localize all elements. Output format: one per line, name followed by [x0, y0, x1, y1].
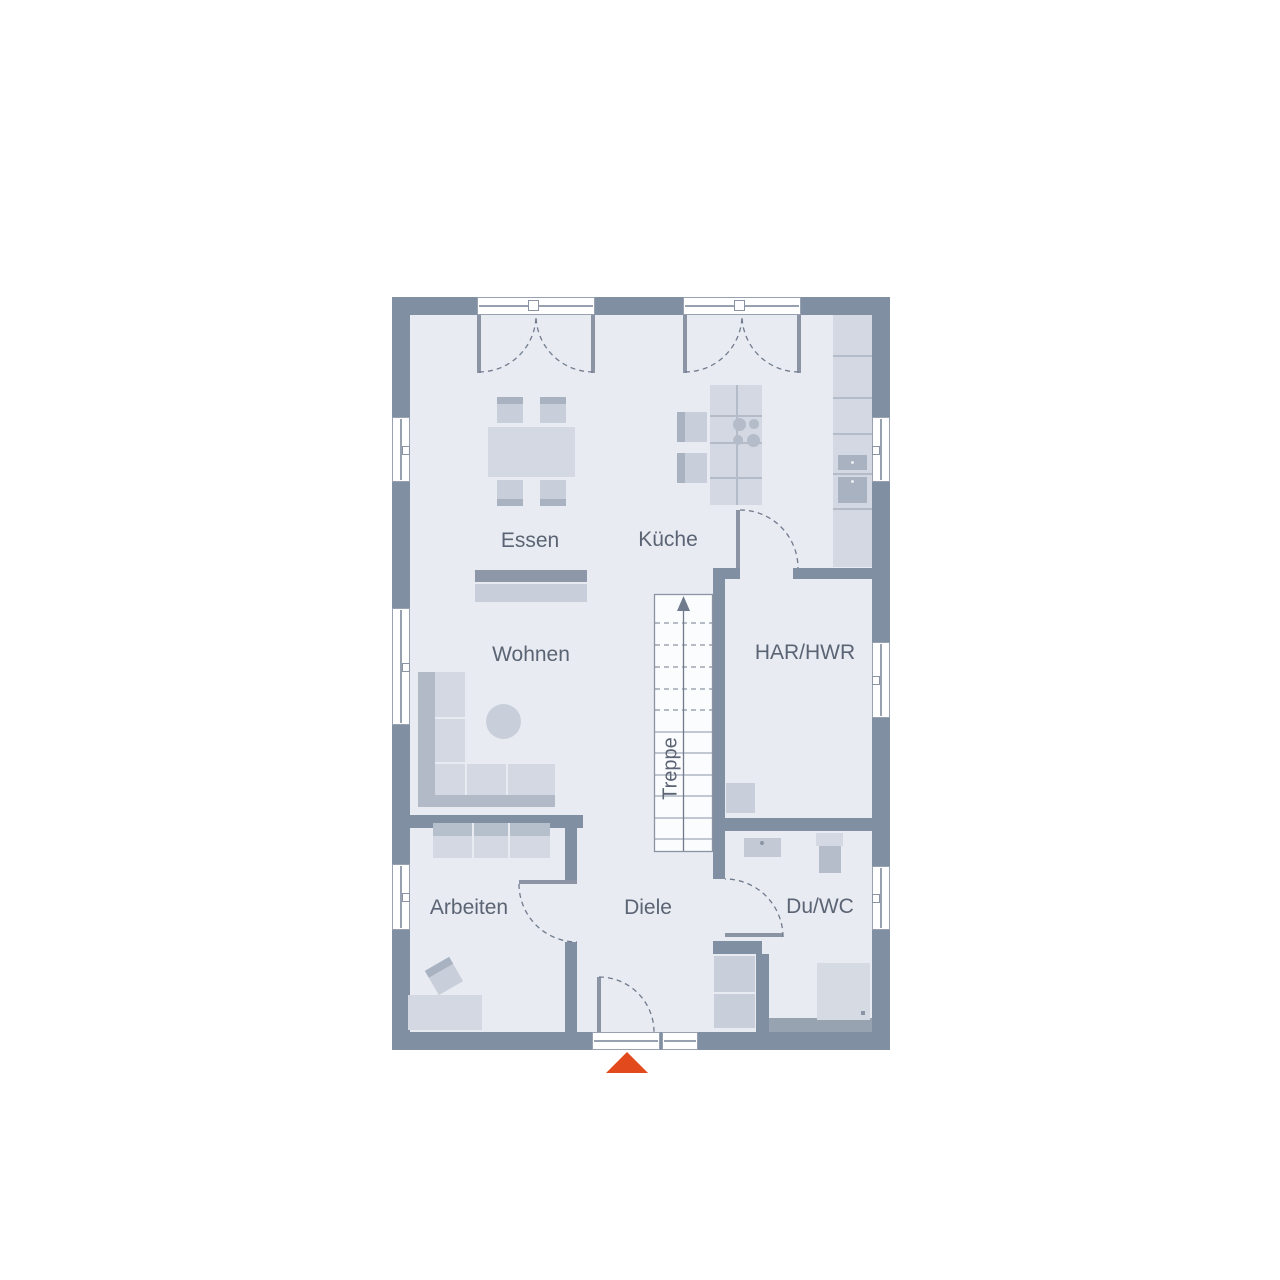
sofa-cushion [435, 672, 465, 717]
faucet-dot [760, 841, 764, 845]
sofa-back-bottom [418, 795, 555, 807]
wardrobe [714, 956, 755, 1028]
chair-backrest [540, 499, 566, 506]
entrance-marker [606, 1052, 648, 1073]
wall-duwc-bottom [769, 1018, 872, 1032]
bathroom-sink [744, 838, 781, 857]
toilet-tank [816, 833, 843, 846]
toilet [816, 833, 843, 873]
window-handle [872, 676, 880, 685]
window-handle [402, 446, 410, 455]
toilet-bowl [819, 846, 841, 873]
room-label-arbeiten: Arbeiten [409, 896, 529, 920]
dining-table [488, 427, 575, 477]
wall-arbeiten-diele-lower [565, 942, 577, 1032]
desk-body [433, 836, 550, 858]
appliance-knob [851, 480, 854, 483]
island-divider [710, 415, 762, 417]
room-label-diele: Diele [598, 896, 698, 920]
dining-chair [497, 480, 523, 506]
floor-plan-page: { "plan": { "rooms": { "essen": { "label… [0, 0, 1280, 1280]
wall-duwc-left-lower [756, 954, 769, 1032]
sideboard-body [475, 584, 587, 602]
window-glass-line [880, 419, 882, 480]
window-arbeiten [392, 864, 410, 930]
sofa-cushion [435, 764, 465, 795]
window-wohnen [392, 608, 410, 725]
window-glass-line [880, 644, 882, 716]
counter-divider [833, 355, 872, 357]
island-divider [710, 477, 762, 479]
room-label-duwc: Du/WC [760, 895, 880, 919]
counter-divider [833, 508, 872, 510]
island-divider [736, 385, 738, 505]
entrance-door-frame [592, 1032, 660, 1050]
french-door-essen-handle [528, 300, 539, 311]
washing-machine [726, 783, 755, 813]
window-glass-line [880, 868, 882, 928]
window-essen [392, 417, 410, 482]
dining-chair [540, 397, 566, 423]
counter-divider [833, 397, 872, 399]
desk-top-band [433, 823, 550, 836]
chair-backrest [497, 499, 523, 506]
built-in-oven [838, 477, 867, 503]
shower [817, 963, 870, 1020]
room-label-essen: Essen [480, 529, 580, 553]
stool-back [677, 453, 685, 483]
window-kueche [872, 417, 890, 482]
shower-drain [861, 1011, 865, 1015]
wall-duwc-stub [713, 941, 762, 954]
bar-stool [677, 453, 707, 483]
counter-divider [833, 433, 872, 435]
sofa-cushion [435, 719, 465, 762]
kitchen-island [710, 385, 762, 505]
cooktop-burner [747, 434, 760, 447]
appliance-knob [851, 461, 854, 464]
stool-back [677, 412, 685, 442]
outer-wall-top [392, 297, 890, 315]
desk-divider [472, 823, 474, 858]
sideboard-top [475, 570, 587, 582]
dining-chair [497, 397, 523, 423]
room-label-wohnen: Wohnen [481, 643, 581, 667]
coffee-table [486, 704, 521, 739]
counter-divider [833, 473, 872, 475]
cooktop-burner [749, 419, 759, 429]
window-handle [872, 446, 880, 455]
chair-backrest [497, 397, 523, 404]
window-har-hwr [872, 642, 890, 718]
room-label-treppe: Treppe [660, 719, 683, 819]
room-label-har-hwr: HAR/HWR [745, 641, 865, 665]
french-door-kueche-handle [734, 300, 745, 311]
window-glass-line [664, 1040, 696, 1042]
dining-chair [540, 480, 566, 506]
desk-divider [508, 823, 510, 858]
chair-backrest [540, 397, 566, 404]
window-handle [402, 663, 410, 672]
wall-har-top-right [793, 568, 872, 579]
door-glass-line [594, 1040, 658, 1042]
sideboard [475, 570, 587, 602]
kitchen-counter [833, 315, 872, 567]
sofa-cushion [508, 764, 555, 795]
wall-har-bottom [725, 818, 872, 831]
wall-arbeiten-diele-upper [565, 815, 577, 884]
side-table [408, 995, 482, 1030]
entrance-sidelight [662, 1032, 698, 1050]
built-in-microwave [838, 455, 867, 470]
wardrobe-divider [714, 992, 755, 994]
sofa [418, 672, 555, 807]
bar-stool [677, 412, 707, 442]
cooktop-burner [733, 418, 746, 431]
desk [433, 823, 550, 858]
sofa-cushion [467, 764, 506, 795]
wall-stairs-har [713, 568, 725, 879]
cooktop-burner [733, 435, 743, 445]
sofa-back-left [418, 672, 435, 807]
room-label-kueche: Küche [618, 528, 718, 552]
